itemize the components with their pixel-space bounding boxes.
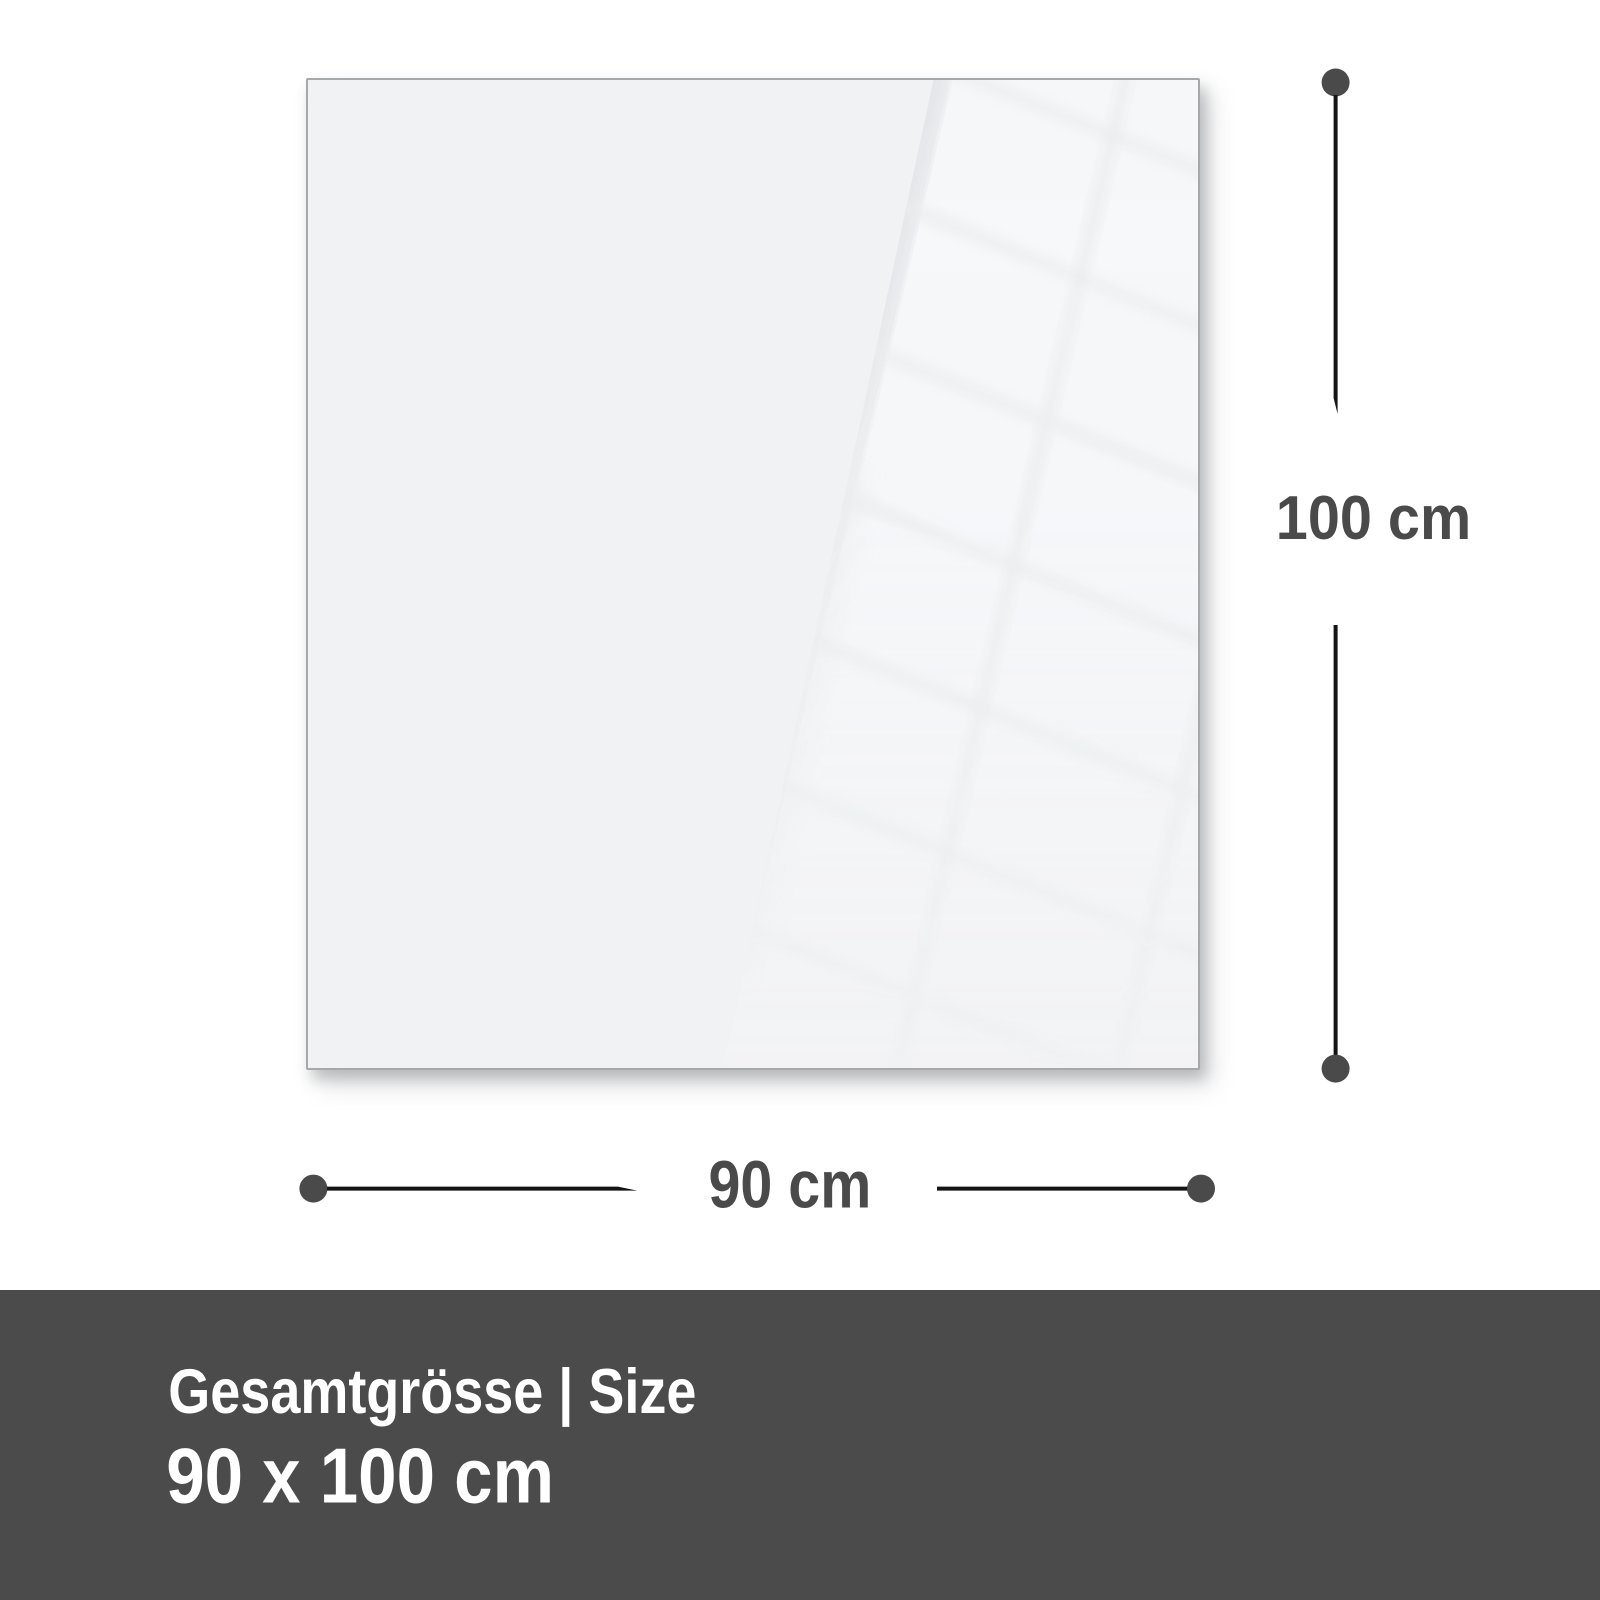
svg-text:90 x 100 cm: 90 x 100 cm — [166, 1431, 554, 1519]
svg-text:100 cm: 100 cm — [1276, 483, 1471, 553]
svg-text:Gesamtgrösse | Size: Gesamtgrösse | Size — [168, 1357, 696, 1427]
svg-text:90 cm: 90 cm — [709, 1147, 872, 1222]
